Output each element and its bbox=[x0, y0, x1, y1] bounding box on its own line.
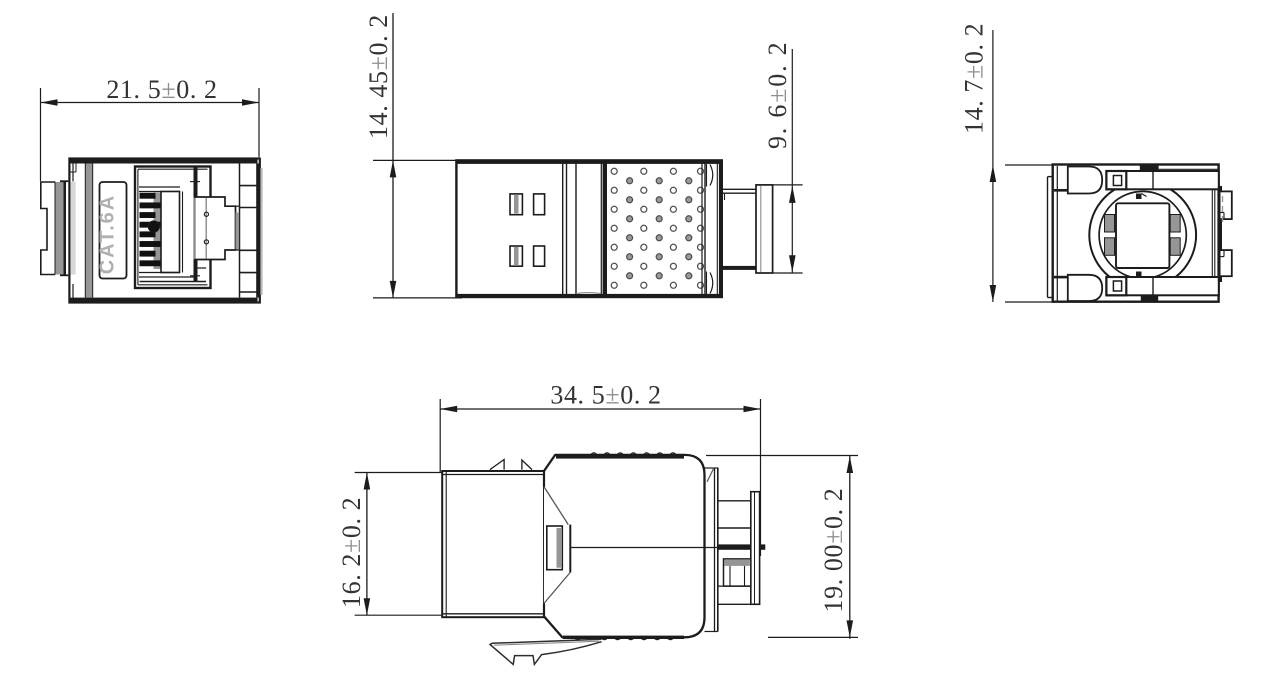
svg-text:19. 00±0. 2: 19. 00±0. 2 bbox=[819, 488, 848, 613]
svg-text:16. 2±0. 2: 16. 2±0. 2 bbox=[337, 497, 366, 608]
svg-text:14. 45±0. 2: 14. 45±0. 2 bbox=[364, 14, 393, 139]
svg-text:CAT.6A: CAT.6A bbox=[97, 194, 119, 275]
svg-text:34. 5±0. 2: 34. 5±0. 2 bbox=[550, 381, 661, 410]
svg-text:21. 5±0. 2: 21. 5±0. 2 bbox=[106, 75, 217, 104]
svg-text:14. 7±0. 2: 14. 7±0. 2 bbox=[960, 23, 989, 134]
svg-text:9. 6±0. 2: 9. 6±0. 2 bbox=[763, 41, 792, 149]
